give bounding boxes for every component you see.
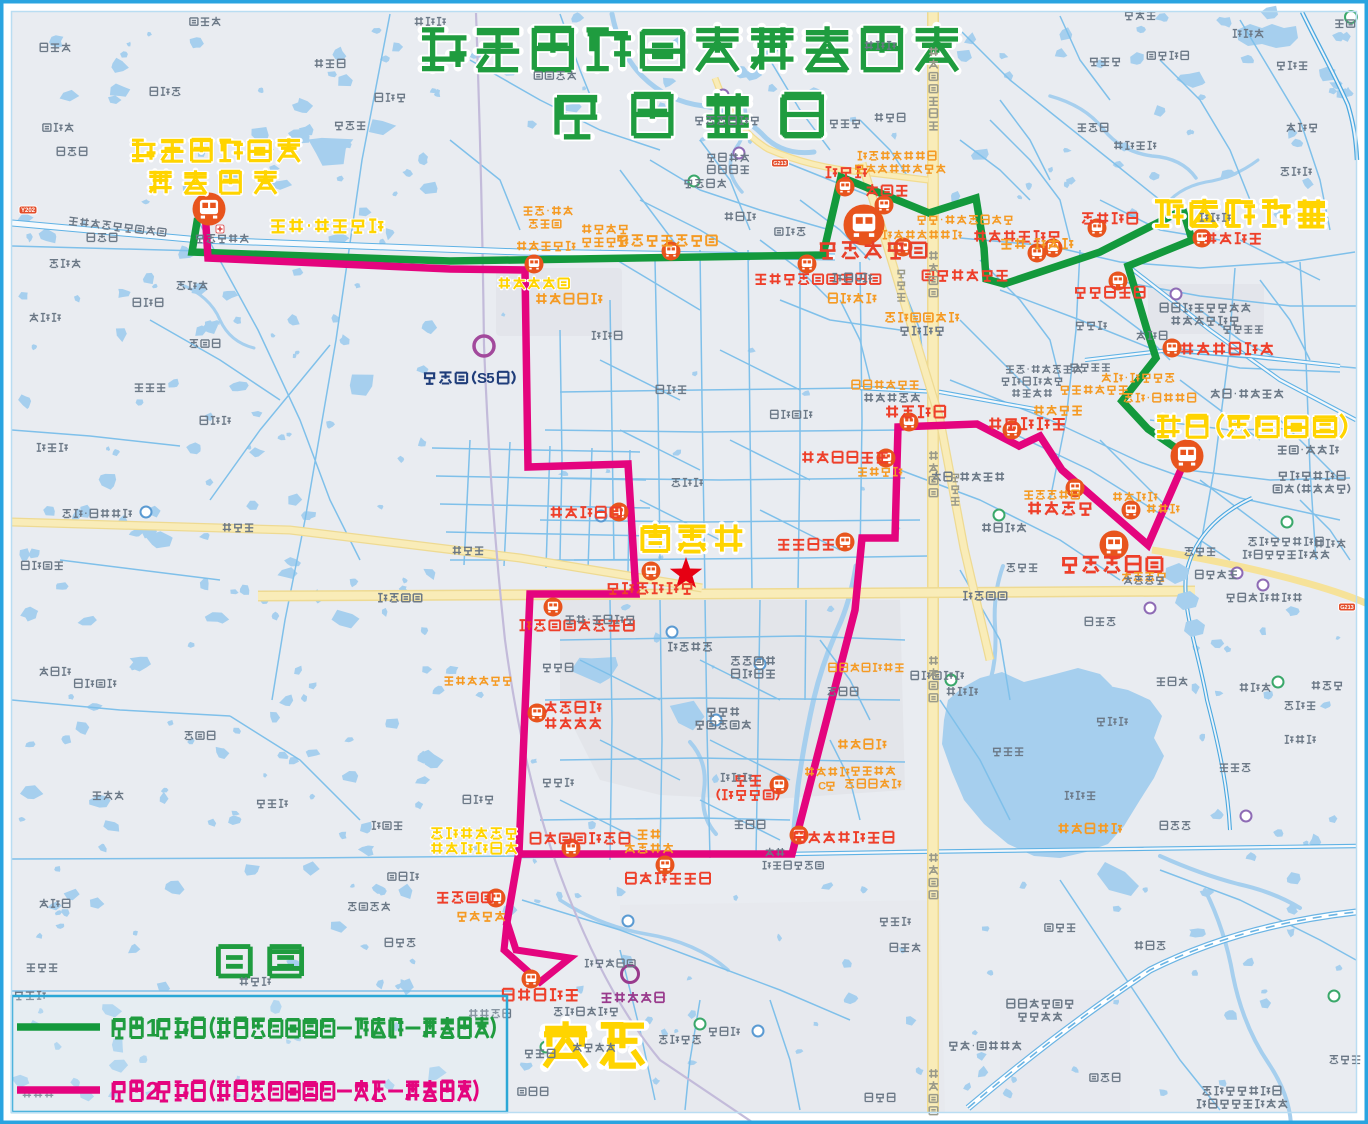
svg-text:5: 5: [486, 370, 494, 387]
svg-text:G213: G213: [1340, 605, 1353, 611]
svg-text:2: 2: [146, 1078, 160, 1106]
svg-text:C: C: [818, 781, 826, 793]
svg-text:U: U: [855, 273, 863, 285]
svg-text:1: 1: [146, 1015, 160, 1043]
svg-text:G213: G213: [773, 161, 786, 167]
svg-text:Y202: Y202: [21, 208, 36, 214]
